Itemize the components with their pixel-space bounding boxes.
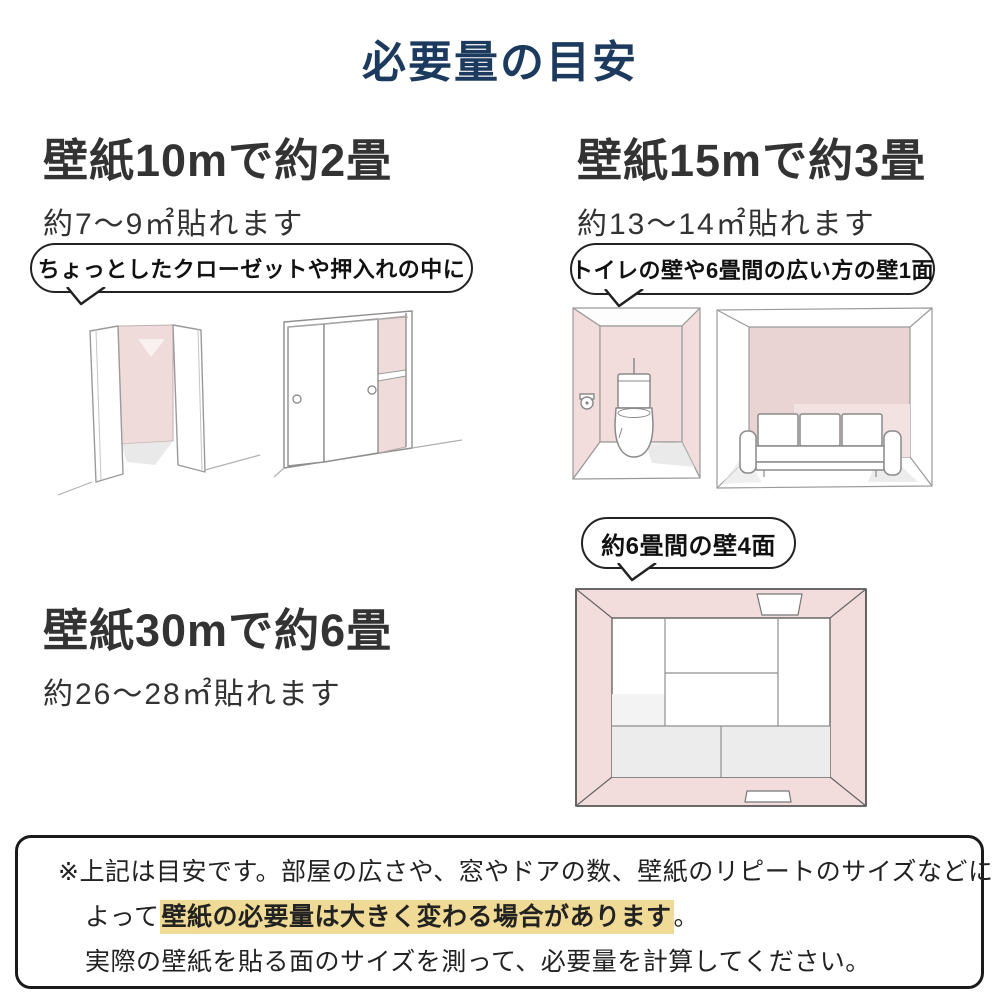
speech-bubble-tail-icon bbox=[615, 563, 659, 583]
subtext-30m: 約26〜28㎡貼れます bbox=[43, 669, 392, 713]
door-mark-bottom bbox=[745, 791, 791, 802]
note-line-3: 実際の壁紙を貼る面のサイズを測って、必要量を計算してください。 bbox=[85, 940, 981, 985]
section-30m: 壁紙30mで約6畳 約26〜28㎡貼れます bbox=[43, 594, 392, 713]
note-line-2: よって壁紙の必要量は大きく変わる場合があります。 bbox=[85, 895, 981, 940]
sofa-room-icon bbox=[712, 296, 952, 508]
heading-10m: 壁紙10mで約2畳 bbox=[43, 124, 392, 189]
speech-bubble-toilet-label: トイレの壁や6畳間の広い方の壁1面 bbox=[571, 253, 934, 285]
subtext-10m: 約7〜9㎡貼れます bbox=[43, 199, 392, 243]
open-closet-illustration bbox=[52, 298, 267, 513]
note-line-1: ※上記は目安です。部屋の広さや、窓やドアの数、壁紙のリピートのサイズなどに bbox=[58, 850, 981, 895]
heading-30m: 壁紙30mで約6畳 bbox=[43, 594, 392, 659]
sliding-closet-icon bbox=[272, 300, 497, 500]
door-mark-top bbox=[757, 594, 802, 615]
note-line-2-suffix: 。 bbox=[674, 903, 700, 931]
note-box: ※上記は目安です。部屋の広さや、窓やドアの数、壁紙のリピートのサイズなどに よっ… bbox=[15, 835, 984, 989]
speech-bubble-toilet: トイレの壁や6畳間の広い方の壁1面 bbox=[570, 243, 935, 295]
section-15m: 壁紙15mで約3畳 約13〜14㎡貼れます bbox=[577, 124, 926, 243]
heading-15m: 壁紙15mで約3畳 bbox=[577, 124, 926, 189]
open-closet-icon bbox=[52, 298, 267, 513]
sliding-closet-illustration bbox=[272, 300, 497, 500]
subtext-15m: 約13〜14㎡貼れます bbox=[577, 199, 926, 243]
tatami-room-illustration bbox=[570, 584, 872, 812]
speech-bubble-four-walls-label: 約6畳間の壁4面 bbox=[601, 526, 776, 561]
toilet-room-illustration bbox=[556, 296, 706, 508]
toilet-room-icon bbox=[556, 296, 706, 508]
note-highlight: 壁紙の必要量は大きく変わる場合があります bbox=[160, 900, 674, 934]
section-10m: 壁紙10mで約2畳 約7〜9㎡貼れます bbox=[43, 124, 392, 243]
note-line-2-prefix: よって bbox=[85, 903, 160, 931]
speech-bubble-closet: ちょっとしたクローゼットや押入れの中に bbox=[30, 243, 473, 293]
infographic-canvas: 必要量の目安 壁紙10mで約2畳 約7〜9㎡貼れます ちょっとしたクローゼットや… bbox=[0, 0, 1000, 1000]
tatami-room-icon bbox=[570, 584, 872, 812]
sofa-icon bbox=[740, 414, 901, 477]
toilet-paper-holder-icon bbox=[580, 394, 594, 409]
speech-bubble-closet-label: ちょっとしたクローゼットや押入れの中に bbox=[38, 252, 466, 284]
page-title: 必要量の目安 bbox=[0, 26, 1000, 90]
speech-bubble-four-walls: 約6畳間の壁4面 bbox=[581, 517, 796, 569]
sofa-room-illustration bbox=[712, 296, 952, 508]
